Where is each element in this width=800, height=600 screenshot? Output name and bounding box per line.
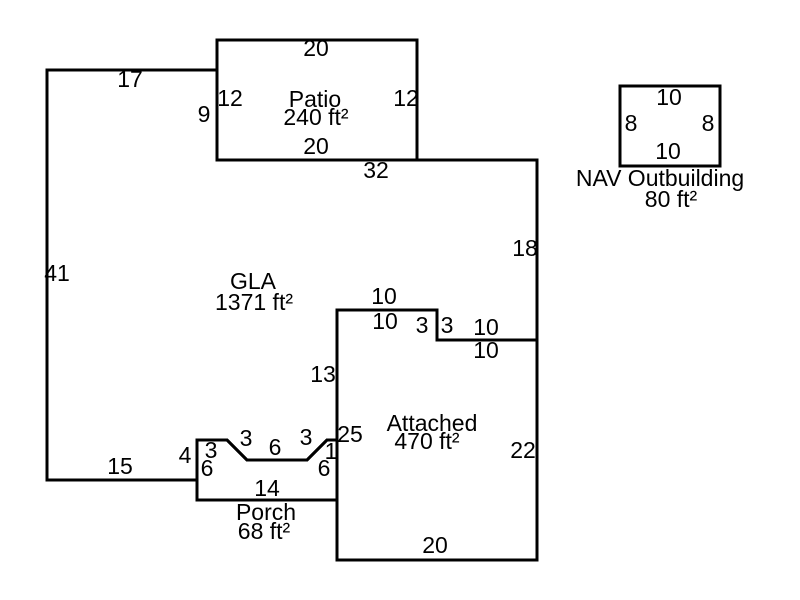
attached-garage-dimension-label-4: 25 bbox=[337, 421, 363, 447]
gla-dimension-label-11: 6 bbox=[269, 434, 282, 460]
gla-dimension-label-3: 32 bbox=[363, 157, 389, 183]
gla-dimension-label-16: 41 bbox=[44, 260, 70, 286]
gla-dimension-label-14: 4 bbox=[179, 442, 192, 468]
porch-label-line-2: 68 ft² bbox=[238, 518, 291, 544]
gla-dimension-label-15: 15 bbox=[107, 453, 133, 479]
gla-label-line-2: 1371 ft² bbox=[215, 289, 293, 315]
attached-garage-dimension-label-6: 20 bbox=[422, 532, 448, 558]
attached-garage-dimension-label-1: 10 bbox=[372, 308, 398, 334]
attached-garage-dimension-label-5: 22 bbox=[510, 437, 536, 463]
patio-label-line-2: 240 ft² bbox=[283, 104, 349, 130]
patio-dimension-label-4: 20 bbox=[303, 133, 329, 159]
floor-plan-sketch-page: GLA1371 ft²179321810310131363341541Patio… bbox=[0, 0, 800, 600]
nav-outbuilding-dimension-label-1: 10 bbox=[656, 84, 682, 110]
patio-dimension-label-2: 12 bbox=[217, 85, 243, 111]
gla-dimension-label-2: 9 bbox=[198, 101, 211, 127]
porch-dimension-label-2: 6 bbox=[318, 455, 331, 481]
gla-dimension-label-12: 3 bbox=[240, 425, 253, 451]
gla-dimension-label-10: 3 bbox=[300, 424, 313, 450]
nav-outbuilding-dimension-label-2: 8 bbox=[625, 110, 638, 136]
gla-dimension-label-6: 3 bbox=[416, 312, 429, 338]
gla-dimension-label-8: 13 bbox=[310, 361, 336, 387]
gla-dimension-label-1: 17 bbox=[117, 66, 143, 92]
attached-garage-label-line-2: 470 ft² bbox=[394, 428, 460, 454]
attached-garage-dimension-label-3: 10 bbox=[473, 337, 499, 363]
attached-garage-dimension-label-2: 3 bbox=[441, 312, 454, 338]
porch-dimension-label-3: 14 bbox=[254, 475, 280, 501]
porch-dimension-label-1: 6 bbox=[201, 455, 214, 481]
nav-outbuilding-dimension-label-4: 10 bbox=[655, 138, 681, 164]
floor-plan-sketch-canvas: GLA1371 ft²179321810310131363341541Patio… bbox=[0, 0, 800, 600]
nav-outbuilding-label-line-2: 80 ft² bbox=[645, 186, 698, 212]
gla-dimension-label-4: 18 bbox=[512, 235, 538, 261]
patio-dimension-label-1: 20 bbox=[303, 35, 329, 61]
patio-dimension-label-3: 12 bbox=[393, 85, 419, 111]
nav-outbuilding-dimension-label-3: 8 bbox=[702, 110, 715, 136]
gla-dimension-label-5: 10 bbox=[371, 283, 397, 309]
